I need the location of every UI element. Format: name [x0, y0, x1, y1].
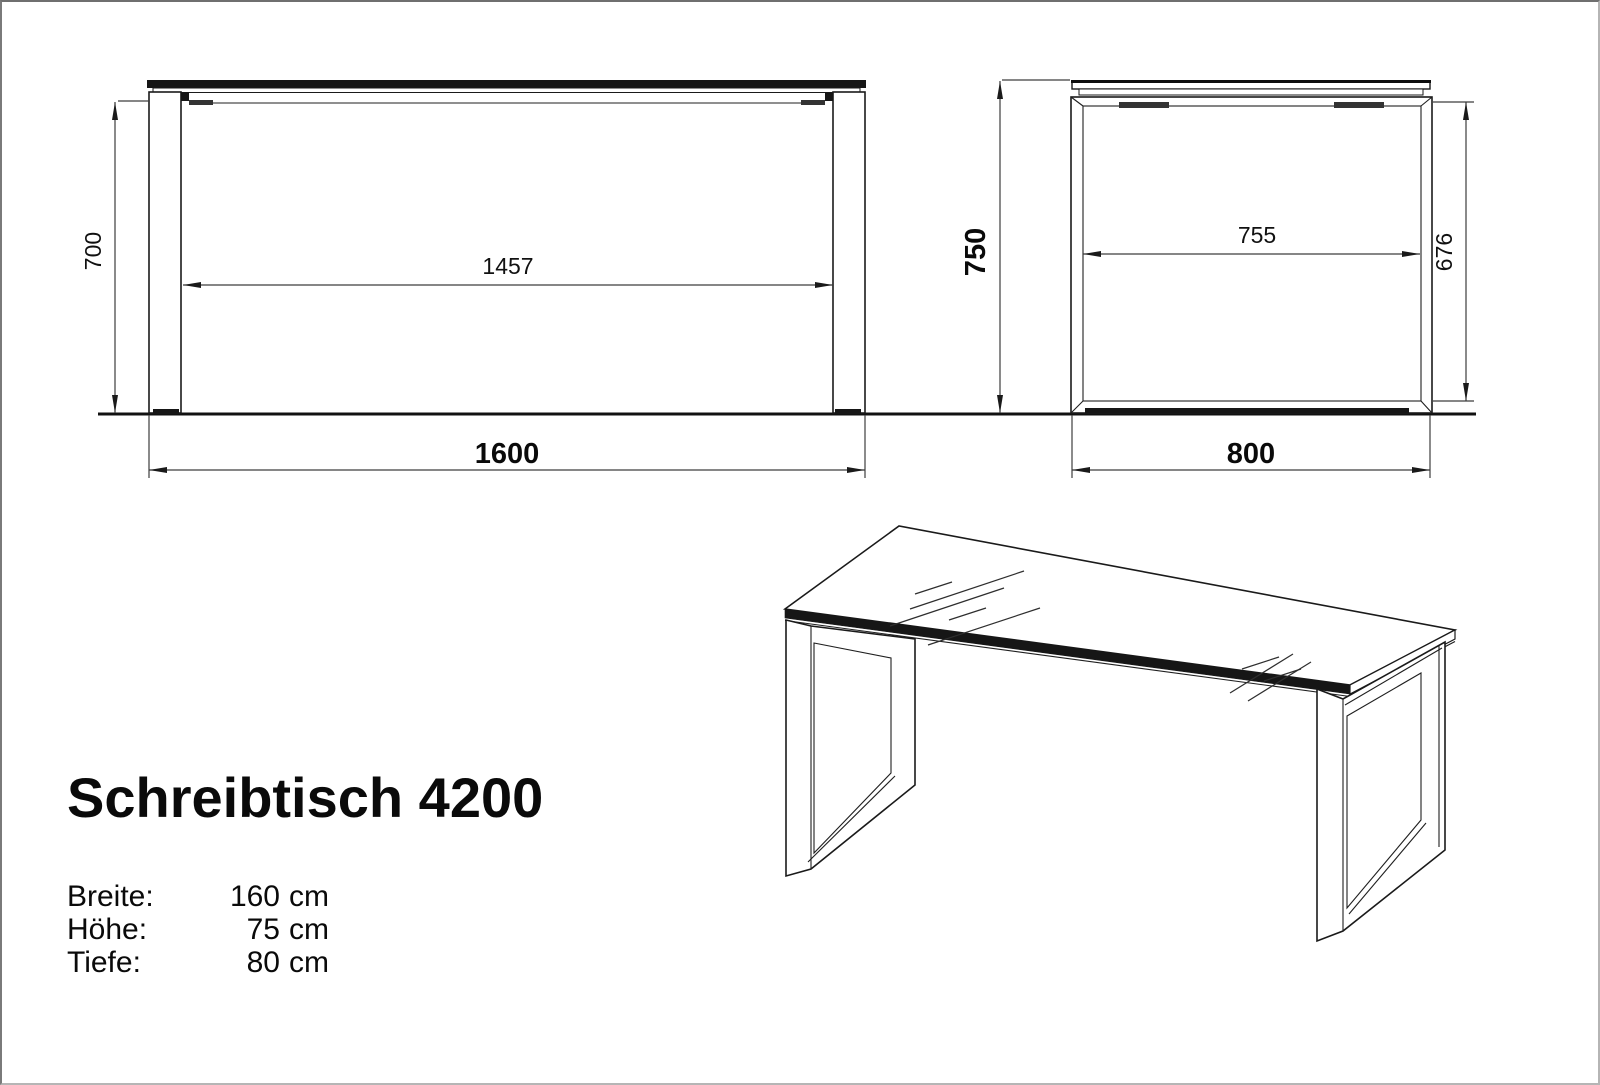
front-view: 700 1457 1600 — [80, 80, 866, 478]
spec-label: Tiefe: — [67, 946, 224, 979]
spec-table: Breite: 160 cm Höhe: 75 cm Tiefe: 80 cm — [67, 880, 543, 979]
spec-value: 75 — [224, 913, 280, 946]
dim-label-800: 800 — [1227, 438, 1275, 470]
perspective-view — [785, 526, 1455, 941]
spec-value: 80 — [224, 946, 280, 979]
dim-label-700: 700 — [80, 232, 106, 270]
side-view: 750 755 676 — [960, 80, 1474, 478]
spec-row-hoehe: Höhe: 75 cm — [67, 913, 543, 946]
spec-row-tiefe: Tiefe: 80 cm — [67, 946, 543, 979]
spec-unit: cm — [289, 946, 329, 979]
dim-label-755: 755 — [1238, 222, 1276, 248]
front-dim-inner-width: 1457 — [183, 253, 833, 288]
front-dim-leg-height: 700 — [80, 101, 149, 413]
side-leg-frame — [1071, 97, 1432, 413]
dim-label-750: 750 — [960, 228, 992, 276]
title-block: Schreibtisch 4200 Breite: 160 cm Höhe: 7… — [67, 768, 543, 979]
side-dim-total-height: 750 — [960, 80, 1070, 413]
front-dim-total-width: 1600 — [149, 415, 865, 478]
perspective-left-leg — [786, 620, 915, 876]
product-title: Schreibtisch 4200 — [67, 768, 543, 828]
side-dim-total-depth: 800 — [1072, 415, 1430, 478]
spec-label: Breite: — [67, 880, 224, 913]
drawing-sheet: 700 1457 1600 — [0, 0, 1600, 1085]
side-dim-inner-height: 676 — [1431, 102, 1474, 401]
dim-label-1600: 1600 — [475, 438, 540, 470]
front-left-leg — [149, 92, 181, 413]
front-right-leg — [833, 92, 865, 413]
spec-unit: cm — [289, 880, 329, 913]
spec-label: Höhe: — [67, 913, 224, 946]
spec-unit: cm — [289, 913, 329, 946]
spec-value: 160 — [224, 880, 280, 913]
spec-row-breite: Breite: 160 cm — [67, 880, 543, 913]
front-tabletop — [147, 80, 866, 88]
dim-label-676: 676 — [1431, 233, 1457, 271]
dim-label-1457: 1457 — [482, 253, 533, 279]
